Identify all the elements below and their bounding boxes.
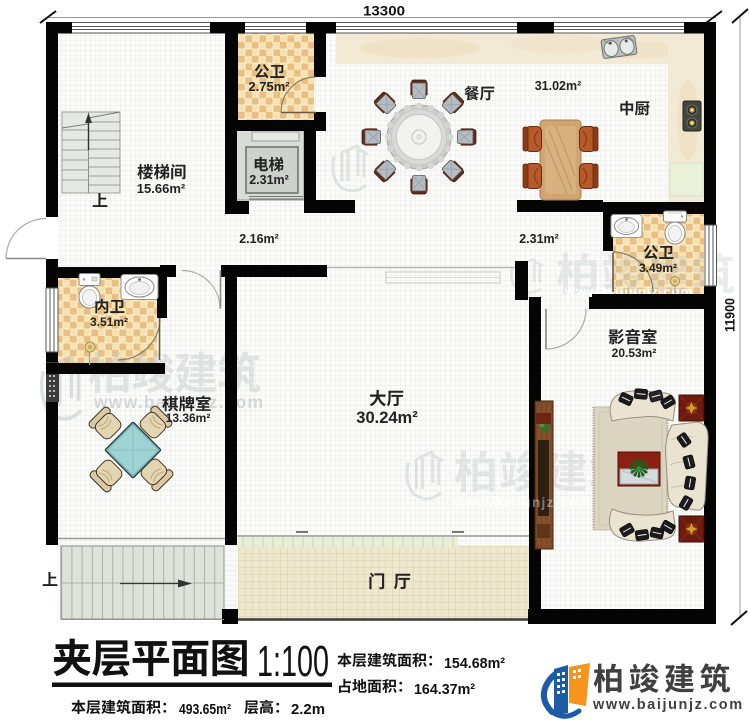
- svg-text:154.68m²: 154.68m²: [444, 655, 505, 672]
- svg-text:2.16m²: 2.16m²: [239, 232, 279, 246]
- svg-text:2.31m²: 2.31m²: [519, 232, 559, 246]
- svg-text:15.66m²: 15.66m²: [137, 181, 186, 196]
- svg-text:20.53m²: 20.53m²: [612, 346, 657, 360]
- svg-text:1:100: 1:100: [257, 637, 329, 686]
- svg-text:13300: 13300: [363, 4, 405, 19]
- svg-text:493.65m²: 493.65m²: [179, 702, 231, 718]
- svg-text:3.51m²: 3.51m²: [90, 315, 128, 329]
- svg-text:2.2m: 2.2m: [291, 702, 325, 718]
- svg-text:164.37m²: 164.37m²: [414, 681, 475, 698]
- svg-text:11900: 11900: [723, 298, 738, 332]
- svg-text:3.49m²: 3.49m²: [639, 261, 677, 275]
- svg-text:2.75m²: 2.75m²: [248, 79, 290, 94]
- svg-text:www.baijunjz.com: www.baijunjz.com: [592, 697, 744, 713]
- svg-text:www.beijunjz.com: www.beijunjz.com: [453, 495, 591, 510]
- svg-text:www.baijunjz.com: www.baijunjz.com: [93, 392, 264, 412]
- svg-text:30.24m²: 30.24m²: [356, 409, 418, 427]
- svg-text:2.31m²: 2.31m²: [249, 173, 289, 187]
- svg-text:31.02m²: 31.02m²: [535, 79, 582, 93]
- svg-text:13.36m²: 13.36m²: [166, 411, 211, 425]
